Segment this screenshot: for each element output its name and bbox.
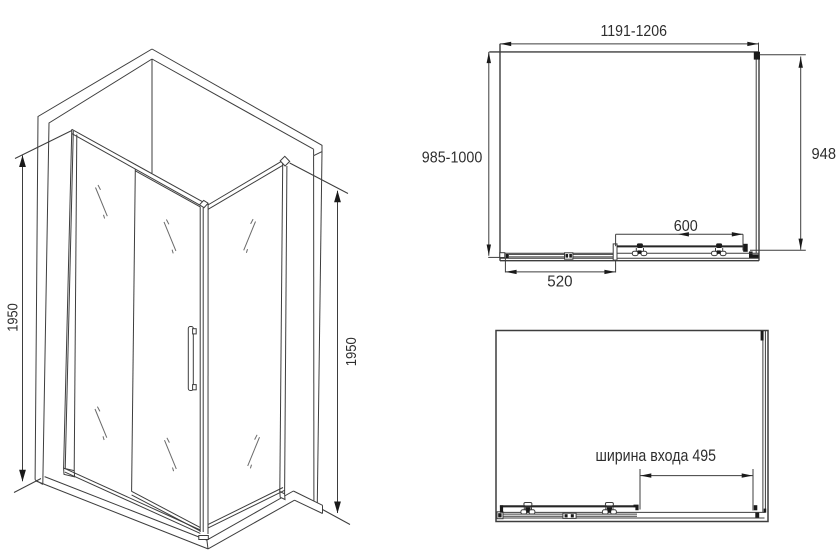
- svg-text:1950: 1950: [343, 337, 360, 366]
- svg-text:1950: 1950: [5, 303, 22, 332]
- svg-text:ширина входа 495: ширина входа 495: [596, 446, 717, 465]
- svg-text:1191-1206: 1191-1206: [601, 23, 668, 40]
- svg-text:600: 600: [674, 218, 698, 235]
- svg-text:520: 520: [547, 274, 572, 291]
- svg-text:985-1000: 985-1000: [422, 149, 483, 166]
- svg-text:948: 948: [812, 146, 837, 163]
